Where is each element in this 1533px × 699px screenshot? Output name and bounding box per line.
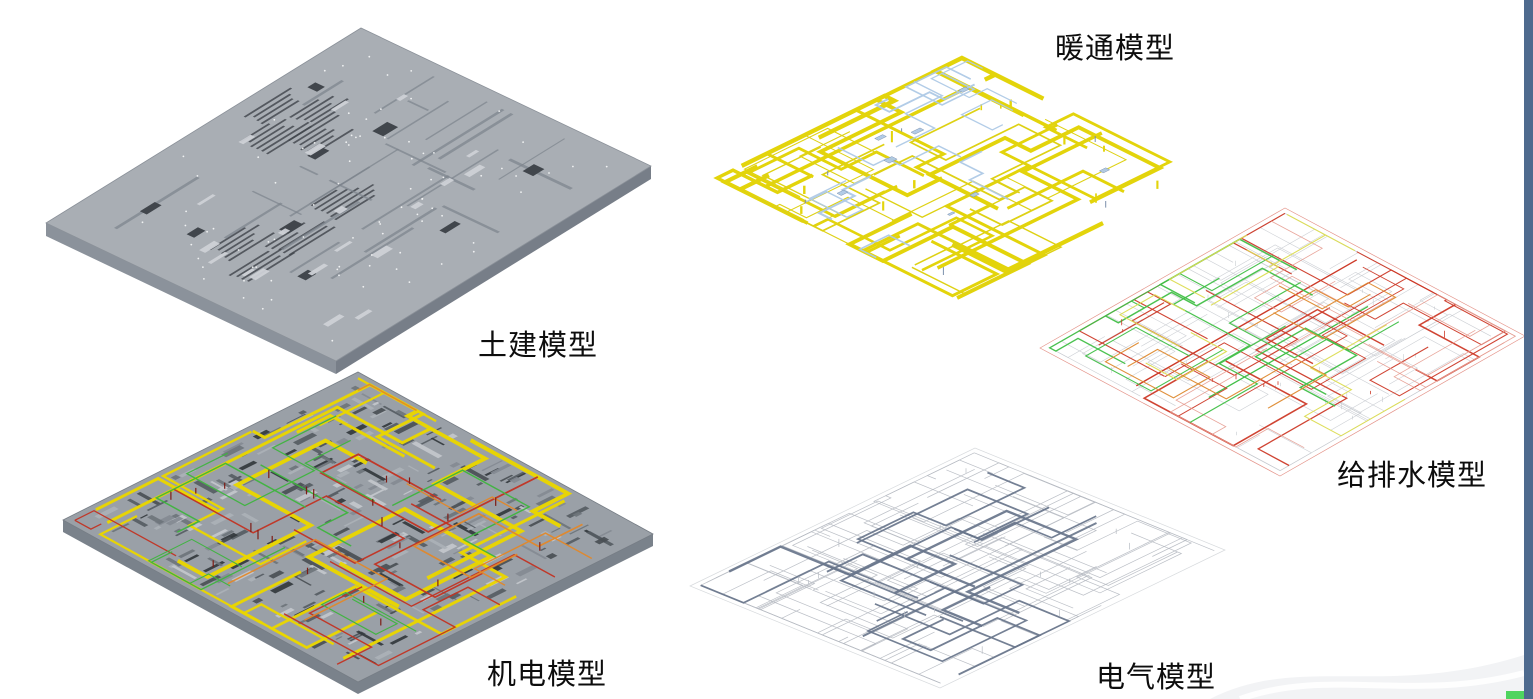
hvac-model-label: 暖通模型: [1055, 31, 1175, 66]
bim-models-overview-page: 土建模型 机电模型 暖通模型 给排水模型 电气模型: [0, 0, 1533, 699]
electrical-model-figure: [678, 428, 1226, 698]
electrical-model-image: [678, 428, 1226, 698]
mep-model-figure: [55, 362, 680, 699]
window-edge-bar: [1524, 0, 1533, 699]
corner-accent-green: [1506, 691, 1524, 699]
civil-model-label: 土建模型: [478, 328, 598, 363]
electrical-model-label: 电气模型: [1096, 660, 1216, 695]
civil-model-figure: [38, 8, 670, 380]
civil-model-image: [38, 8, 670, 380]
mep-model-label: 机电模型: [487, 657, 607, 692]
plumbing-model-label: 给排水模型: [1337, 458, 1487, 493]
mep-model-image: [55, 362, 680, 699]
